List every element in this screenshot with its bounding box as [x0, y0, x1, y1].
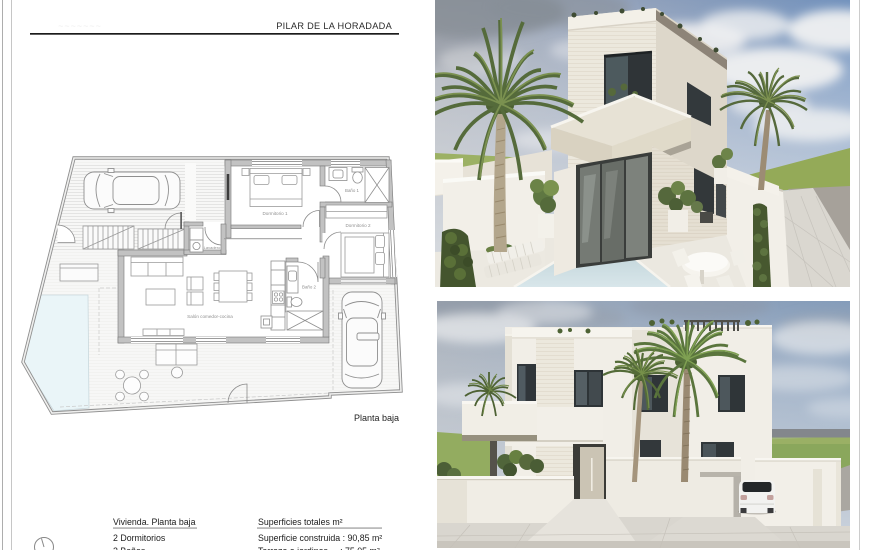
svg-text:Dormitorio 2: Dormitorio 2 [345, 223, 370, 228]
svg-text:Lavadero: Lavadero [204, 245, 221, 250]
svg-text:Baño 2: Baño 2 [302, 285, 316, 290]
svg-text:2 Baños: 2 Baños [113, 546, 146, 550]
svg-text:Salón comedor-cocina: Salón comedor-cocina [187, 314, 233, 319]
svg-text:Planta baja: Planta baja [354, 413, 399, 423]
svg-text:Superficie construida : 90,85: Superficie construida : 90,85 m² [258, 533, 382, 543]
svg-text:Terraza e jardines : 75,05: Terraza e jardines : 75,05 m² [258, 546, 380, 550]
svg-text:PILAR DE LA HORADADA: PILAR DE LA HORADADA [276, 21, 392, 31]
svg-text:~~~~~~~: ~~~~~~~ [58, 21, 102, 31]
svg-text:Superficies totales m²: Superficies totales m² [258, 517, 343, 527]
svg-text:Vivienda. Planta baja: Vivienda. Planta baja [113, 517, 196, 527]
svg-text:Dormitorio 1: Dormitorio 1 [262, 211, 287, 216]
svg-text:2 Dormitorios: 2 Dormitorios [113, 533, 166, 543]
svg-text:Baño 1: Baño 1 [345, 188, 359, 193]
